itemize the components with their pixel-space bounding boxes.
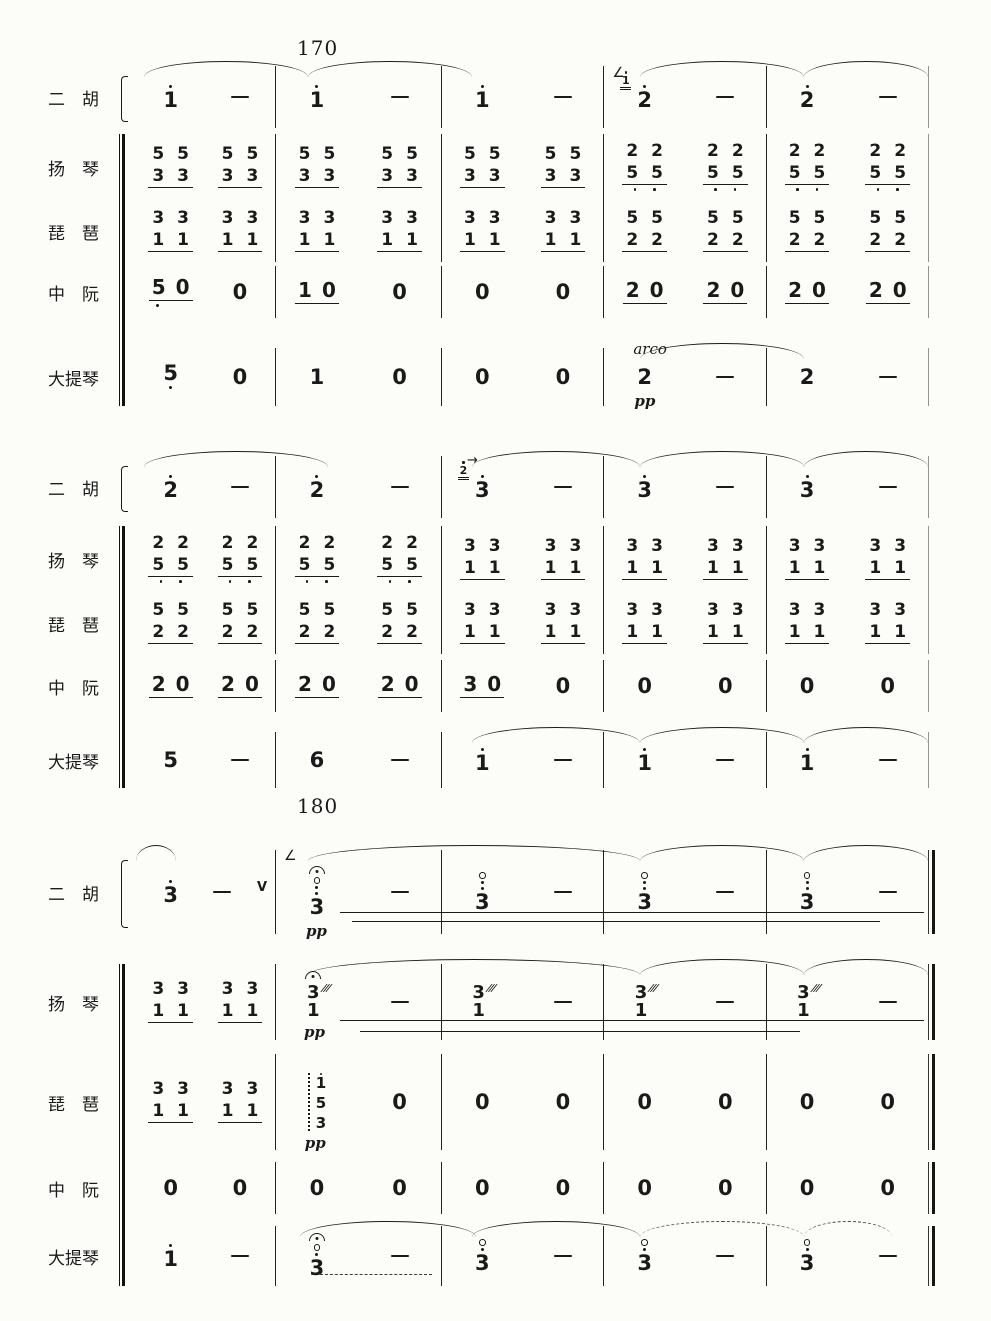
sustain-line	[320, 1274, 432, 1275]
note-digit: 1	[316, 1076, 326, 1091]
note-number: 1	[163, 1249, 178, 1270]
duration-dash	[716, 1255, 734, 1257]
rest-note: 0	[880, 1092, 895, 1113]
note-number: 3	[310, 897, 325, 918]
beat: pp∠3	[276, 866, 359, 918]
note-number: 1	[152, 1103, 164, 1120]
beat: 0	[604, 1178, 685, 1199]
slur-arc	[804, 1221, 892, 1237]
barline-thin	[928, 1054, 929, 1150]
slur-arc	[640, 845, 804, 861]
instrument-label-yangqin: 扬 琴	[40, 964, 120, 1040]
dynamic-pp: pp	[306, 924, 327, 939]
note-number: 1	[797, 1002, 810, 1020]
beat: 0	[685, 1178, 766, 1199]
slur-arc	[804, 959, 928, 975]
beat: 0	[276, 1178, 359, 1199]
beat	[523, 1255, 604, 1257]
harmonic-circle-icon	[641, 1239, 648, 1246]
beat: 0	[523, 1092, 604, 1113]
note: 3	[475, 871, 490, 913]
note: 3	[163, 878, 178, 905]
tremolo-chord: 3///1pp	[307, 984, 327, 1020]
end-barline	[928, 1054, 936, 1150]
staff-row-cello: 大提琴13333	[40, 1226, 936, 1286]
beat: 153pp	[276, 1073, 359, 1132]
arpeggio-chord: 153pp	[308, 1073, 326, 1132]
beat	[523, 1001, 604, 1003]
note-number: 0	[880, 1178, 895, 1199]
rest-note: 0	[556, 1178, 571, 1199]
dash-line	[554, 1255, 572, 1257]
note: 3	[637, 1238, 652, 1274]
rest-note: 0	[718, 1092, 733, 1113]
beat: 3311	[136, 981, 205, 1023]
rest-note: 0	[880, 1178, 895, 1199]
note: 3	[800, 871, 815, 913]
sustain-line	[340, 1020, 924, 1021]
double-stop-pair: 3311	[218, 981, 263, 1023]
measures-area: 33113311153pp0000000	[136, 1054, 936, 1150]
measure: 00	[136, 1162, 275, 1214]
beat: 0	[847, 1178, 928, 1199]
harmonic-circle-icon	[641, 872, 648, 879]
duration-dash	[879, 1255, 897, 1257]
note-number: 0	[163, 1178, 178, 1199]
note-number: 1	[177, 1003, 189, 1020]
note-number: 0	[718, 1092, 733, 1113]
rest-note: 0	[392, 1178, 407, 1199]
duration-dash	[554, 1001, 572, 1003]
note: 3	[637, 871, 652, 913]
beat: 3///1	[767, 984, 848, 1020]
slur-arc	[308, 845, 640, 861]
sustain-line	[352, 921, 880, 922]
beat: 0	[358, 1092, 441, 1113]
beat	[685, 891, 766, 893]
slur-arc	[640, 1221, 804, 1237]
note-number: 1	[152, 1003, 164, 1020]
note-number: 1	[307, 1002, 320, 1020]
note-number: 0	[880, 1092, 895, 1113]
instrument-label-erhu: 二 胡	[40, 850, 120, 934]
harmonic-circle-icon	[804, 872, 811, 879]
beat	[523, 891, 604, 893]
dash-line	[213, 891, 231, 893]
octave-dot-above	[481, 881, 484, 884]
harmonic-circle-icon	[479, 1239, 486, 1246]
note-number: 3	[310, 1258, 325, 1279]
rest-note: 0	[800, 1092, 815, 1113]
arpeggio-icon	[308, 1073, 310, 1131]
beat: 0	[604, 1092, 685, 1113]
chord-bottom-row: 11	[148, 1003, 193, 1023]
note: 3	[309, 1233, 325, 1279]
slur-arc	[804, 845, 928, 861]
duration-dash	[879, 1001, 897, 1003]
note-number: 3	[800, 1253, 815, 1274]
beat: 3	[276, 1233, 359, 1279]
measure: 00	[441, 1162, 603, 1214]
note-number: 5	[316, 1096, 326, 1111]
note-number: 0	[392, 1178, 407, 1199]
sustain-line	[360, 1031, 800, 1032]
barline-thin	[928, 964, 929, 1040]
note: 3	[475, 1238, 490, 1274]
duration-dash	[554, 1255, 572, 1257]
barline-thin	[928, 850, 929, 934]
beat: 0	[358, 1178, 441, 1199]
measure: 1	[136, 1226, 275, 1286]
rest-note: 0	[718, 1178, 733, 1199]
note-number: 3	[316, 1116, 326, 1131]
note-number: 0	[556, 1092, 571, 1113]
note-number: 1	[472, 1002, 485, 1020]
slur-arc	[300, 1221, 476, 1237]
instrument-label-cello: 大提琴	[40, 1226, 120, 1286]
measure: 00	[275, 1162, 441, 1214]
measures-area: 0000000000	[136, 1162, 936, 1214]
tremolo-icon: ///	[810, 984, 821, 995]
tremolo-chord: 3///1	[797, 984, 817, 1020]
measure: 00	[603, 1162, 765, 1214]
measures-area: 331133113///1pp3///13///13///1	[136, 964, 936, 1040]
note-number: 0	[233, 1178, 248, 1199]
note-number: 1	[246, 1003, 258, 1020]
octave-dot-above	[315, 886, 318, 889]
harmonic-circle-icon	[314, 1244, 321, 1251]
note-number: 1	[635, 1002, 648, 1020]
note: pp∠3	[309, 866, 325, 918]
note-number: 3	[177, 981, 189, 998]
note-number: 3	[246, 1081, 258, 1098]
upbow-icon: V	[257, 880, 267, 895]
note-number: 1	[222, 1003, 234, 1020]
beat: 0	[442, 1092, 523, 1113]
tremolo-icon: ///	[320, 984, 331, 995]
note-number: 0	[475, 1178, 490, 1199]
beat: 3	[604, 1238, 685, 1274]
note-digit: 3	[316, 1116, 326, 1131]
end-barline	[928, 1226, 936, 1286]
measure: 33113311	[136, 1054, 275, 1150]
tremolo-icon: ///	[485, 984, 496, 995]
group-bracket	[119, 964, 125, 1286]
note-number: 3	[177, 1081, 189, 1098]
rest-note: 0	[475, 1092, 490, 1113]
duration-dash	[391, 1001, 409, 1003]
beat: 3	[136, 878, 205, 905]
beat: 0	[205, 1178, 274, 1199]
duration-dash	[391, 1255, 409, 1257]
beat	[847, 1001, 928, 1003]
beat: 3311	[205, 1081, 274, 1123]
dash-line	[879, 891, 897, 893]
chord-bottom-row: 11	[218, 1003, 263, 1023]
measures-area: 13333	[136, 1226, 936, 1286]
measure: 3///1	[441, 964, 603, 1040]
sustain-line	[340, 912, 924, 913]
measure: 3V	[136, 850, 275, 934]
dash-line	[391, 1255, 409, 1257]
slur-arc	[308, 959, 640, 975]
beat: 3311	[136, 1081, 205, 1123]
dynamic-pp: pp	[305, 1134, 326, 1152]
duration-dash	[879, 891, 897, 893]
instrument-label-zhongruan: 中 阮	[40, 1162, 120, 1214]
beat: 0	[523, 1178, 604, 1199]
note: 1	[163, 1242, 178, 1269]
octave-dot-above	[643, 881, 646, 884]
end-barline	[928, 850, 936, 934]
beat: 1	[136, 1242, 205, 1269]
slur-arc	[136, 845, 176, 861]
note-number: 0	[310, 1178, 325, 1199]
beat	[358, 891, 441, 893]
rest-note: 0	[637, 1092, 652, 1113]
measure: 3///1pp	[275, 964, 441, 1040]
dash-line	[716, 891, 734, 893]
note-number: 0	[800, 1178, 815, 1199]
tremolo-chord: 3///1	[635, 984, 655, 1020]
beat: 3	[442, 1238, 523, 1274]
beat: 3///1	[442, 984, 523, 1020]
fermata-icon	[309, 866, 325, 874]
measure: 33113311	[136, 964, 275, 1040]
tremolo-icon: ///	[648, 984, 659, 995]
measure: 3///1	[603, 964, 765, 1040]
note-number: 3	[637, 892, 652, 913]
rest-note: 0	[392, 1092, 407, 1113]
beat: 3	[767, 871, 848, 913]
dash-line	[554, 1001, 572, 1003]
harmonic-circle-icon	[314, 877, 321, 884]
rest-note: 0	[310, 1178, 325, 1199]
note-number: 3	[800, 892, 815, 913]
duration-dash	[716, 891, 734, 893]
beat: 3311	[205, 981, 274, 1023]
barline-thick	[932, 1226, 935, 1286]
barline-thick	[932, 850, 935, 934]
beat: 0	[767, 1178, 848, 1199]
dash-line	[716, 1001, 734, 1003]
duration-dash	[213, 891, 231, 893]
instrument-label-pipa: 琵 琶	[40, 1054, 120, 1150]
note-number: 3	[163, 885, 178, 906]
note-number: 0	[637, 1178, 652, 1199]
dash-line	[879, 1001, 897, 1003]
beat: 3	[767, 1238, 848, 1274]
note-number: 3	[246, 981, 258, 998]
beat: 0	[442, 1178, 523, 1199]
beat	[205, 1255, 274, 1257]
beat: 0	[685, 1092, 766, 1113]
note-digit: 5	[316, 1096, 326, 1111]
note-number: 0	[556, 1178, 571, 1199]
sheet-music-page: 170二 胡111∠212扬 琴553355335533553355335533…	[0, 0, 991, 1321]
staff-row-zhongruan: 中 阮0000000000	[40, 1162, 936, 1214]
rest-note: 0	[475, 1178, 490, 1199]
note-number: 3	[222, 1081, 234, 1098]
tremolo-chord: 3///1	[472, 984, 492, 1020]
note-number: 1	[222, 1103, 234, 1120]
double-stop-pair: 3311	[218, 1081, 263, 1123]
note-number: 0	[800, 1092, 815, 1113]
measure: 153pp0	[275, 1054, 441, 1150]
slur-arc	[472, 1221, 640, 1237]
beat	[847, 1255, 928, 1257]
harmonic-circle-icon	[804, 1239, 811, 1246]
arpeggio-notes: 153	[316, 1073, 326, 1132]
beat	[358, 1001, 441, 1003]
note-number: 3	[152, 1081, 164, 1098]
beat: 3///1pp	[276, 984, 359, 1020]
beat: 3	[604, 871, 685, 913]
chord-top-row: 33	[148, 1081, 193, 1098]
duration-dash	[391, 891, 409, 893]
note-number: 0	[718, 1178, 733, 1199]
note-number: 0	[475, 1092, 490, 1113]
beat: 0	[136, 1178, 205, 1199]
beat	[685, 1255, 766, 1257]
barline-thin	[928, 1226, 929, 1286]
staff-row-erhu: 二 胡3Vpp∠3333	[40, 850, 936, 934]
note-number: 3	[152, 981, 164, 998]
beat: V	[205, 885, 274, 900]
slur-arc	[640, 959, 804, 975]
note-number: 1	[177, 1103, 189, 1120]
system-3: 180二 胡3Vpp∠3333扬 琴331133113///1pp3///13/…	[0, 0, 991, 1321]
note-number: 0	[392, 1092, 407, 1113]
double-stop-pair: 3311	[148, 981, 193, 1023]
note-number: 3	[475, 892, 490, 913]
beat	[847, 891, 928, 893]
rest-note: 0	[556, 1092, 571, 1113]
chord-top-row: 33	[148, 981, 193, 998]
dash-line	[391, 891, 409, 893]
dash-line	[879, 1255, 897, 1257]
beat	[685, 1001, 766, 1003]
beat: 0	[767, 1092, 848, 1113]
measure-number: 180	[297, 794, 338, 818]
end-barline	[928, 964, 936, 1040]
dash-line	[716, 1255, 734, 1257]
harmonic-circle-icon	[479, 872, 486, 879]
double-stop-pair: 3311	[148, 1081, 193, 1123]
staff-row-yangqin: 扬 琴331133113///1pp3///13///13///1	[40, 964, 936, 1040]
measure: 00	[603, 1054, 765, 1150]
barline-thin	[928, 1162, 929, 1214]
note-number: 3	[222, 981, 234, 998]
duration-dash	[554, 891, 572, 893]
note: 3	[800, 1238, 815, 1274]
measure: 00	[766, 1162, 928, 1214]
duration-dash	[716, 1001, 734, 1003]
end-barline	[928, 1162, 936, 1214]
dash-line	[554, 891, 572, 893]
erhu-bracket	[121, 860, 128, 928]
rest-note: 0	[637, 1178, 652, 1199]
dynamic-pp: pp	[304, 1024, 325, 1041]
rest-note: 0	[233, 1178, 248, 1199]
note-number: 0	[637, 1092, 652, 1113]
duration-dash	[231, 1255, 249, 1257]
rest-note: 0	[163, 1178, 178, 1199]
chord-top-row: 33	[218, 1081, 263, 1098]
beat: 0	[847, 1092, 928, 1113]
rest-note: 0	[800, 1178, 815, 1199]
note-number: 1	[246, 1103, 258, 1120]
note-number: 3	[637, 1253, 652, 1274]
slide-ornament-icon: ∠	[284, 849, 297, 863]
measures-area: 3Vpp∠3333	[136, 850, 936, 934]
measure: 00	[766, 1054, 928, 1150]
barline-thick	[932, 964, 935, 1040]
chord-bottom-row: 11	[218, 1103, 263, 1123]
beat: 3///1	[604, 984, 685, 1020]
octave-dot-above	[806, 881, 809, 884]
measure: 00	[441, 1054, 603, 1150]
beat	[358, 1255, 441, 1257]
dash-line	[391, 1001, 409, 1003]
note-number: 1	[316, 1073, 326, 1092]
chord-bottom-row: 11	[148, 1103, 193, 1123]
beat: 3	[442, 871, 523, 913]
note-number: 3	[475, 1253, 490, 1274]
barline-thick	[932, 1162, 935, 1214]
staff-row-pipa: 琵 琶33113311153pp0000000	[40, 1054, 936, 1150]
chord-top-row: 33	[218, 981, 263, 998]
measure: 3///1	[766, 964, 928, 1040]
dash-line	[231, 1255, 249, 1257]
barline-thick	[932, 1054, 935, 1150]
